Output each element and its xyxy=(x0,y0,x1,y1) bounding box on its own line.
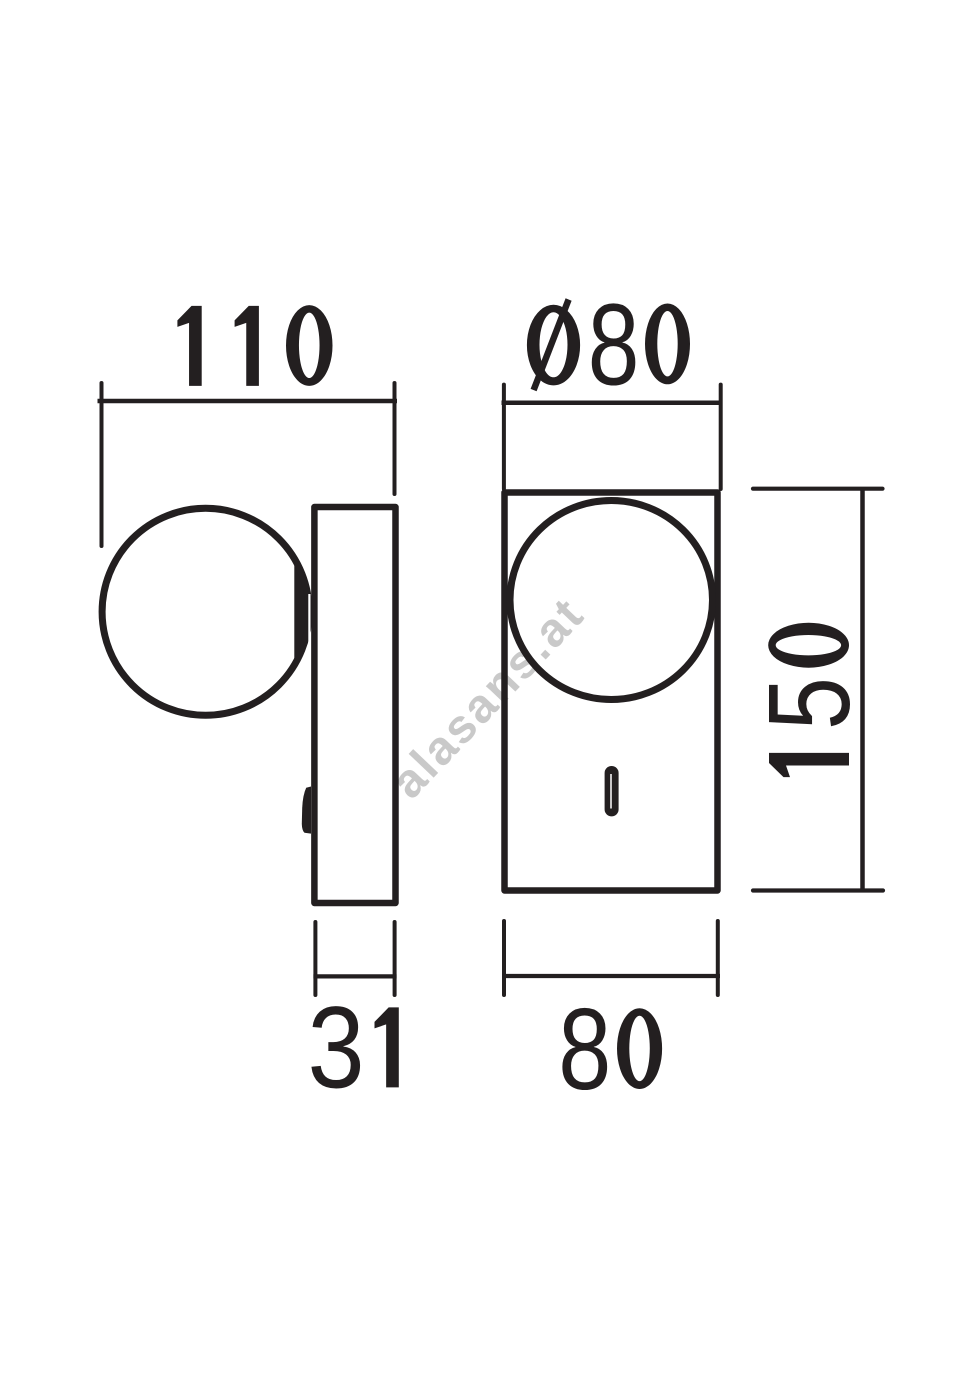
svg-text:8: 8 xyxy=(588,280,640,409)
svg-text:8: 8 xyxy=(558,985,611,1114)
svg-text:3: 3 xyxy=(308,984,365,1113)
svg-text:5: 5 xyxy=(745,677,874,730)
